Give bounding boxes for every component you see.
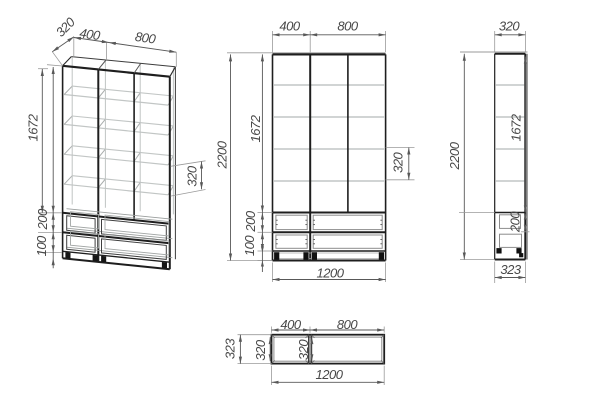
svg-text:1672: 1672 bbox=[26, 113, 41, 141]
svg-text:400: 400 bbox=[79, 25, 102, 43]
svg-text:1200: 1200 bbox=[316, 367, 344, 382]
svg-text:400: 400 bbox=[279, 19, 300, 34]
svg-text:800: 800 bbox=[337, 317, 358, 332]
svg-text:1672: 1672 bbox=[248, 114, 263, 142]
svg-text:200: 200 bbox=[35, 208, 50, 230]
svg-text:323: 323 bbox=[500, 262, 521, 277]
svg-text:320: 320 bbox=[185, 165, 200, 186]
svg-text:800: 800 bbox=[134, 29, 157, 47]
svg-text:200: 200 bbox=[243, 210, 258, 232]
svg-text:200: 200 bbox=[507, 211, 522, 233]
svg-text:2200: 2200 bbox=[447, 141, 462, 170]
svg-text:400: 400 bbox=[280, 317, 301, 332]
svg-text:100: 100 bbox=[242, 235, 257, 256]
svg-text:1672: 1672 bbox=[508, 113, 523, 141]
svg-text:1200: 1200 bbox=[317, 265, 345, 280]
svg-text:320: 320 bbox=[296, 339, 311, 360]
svg-text:323: 323 bbox=[222, 338, 237, 359]
svg-text:800: 800 bbox=[337, 19, 358, 34]
svg-text:320: 320 bbox=[499, 19, 520, 34]
svg-text:320: 320 bbox=[53, 14, 79, 40]
svg-text:320: 320 bbox=[253, 339, 268, 360]
svg-text:320: 320 bbox=[391, 151, 406, 172]
svg-text:100: 100 bbox=[34, 235, 49, 256]
svg-text:2200: 2200 bbox=[214, 140, 229, 169]
